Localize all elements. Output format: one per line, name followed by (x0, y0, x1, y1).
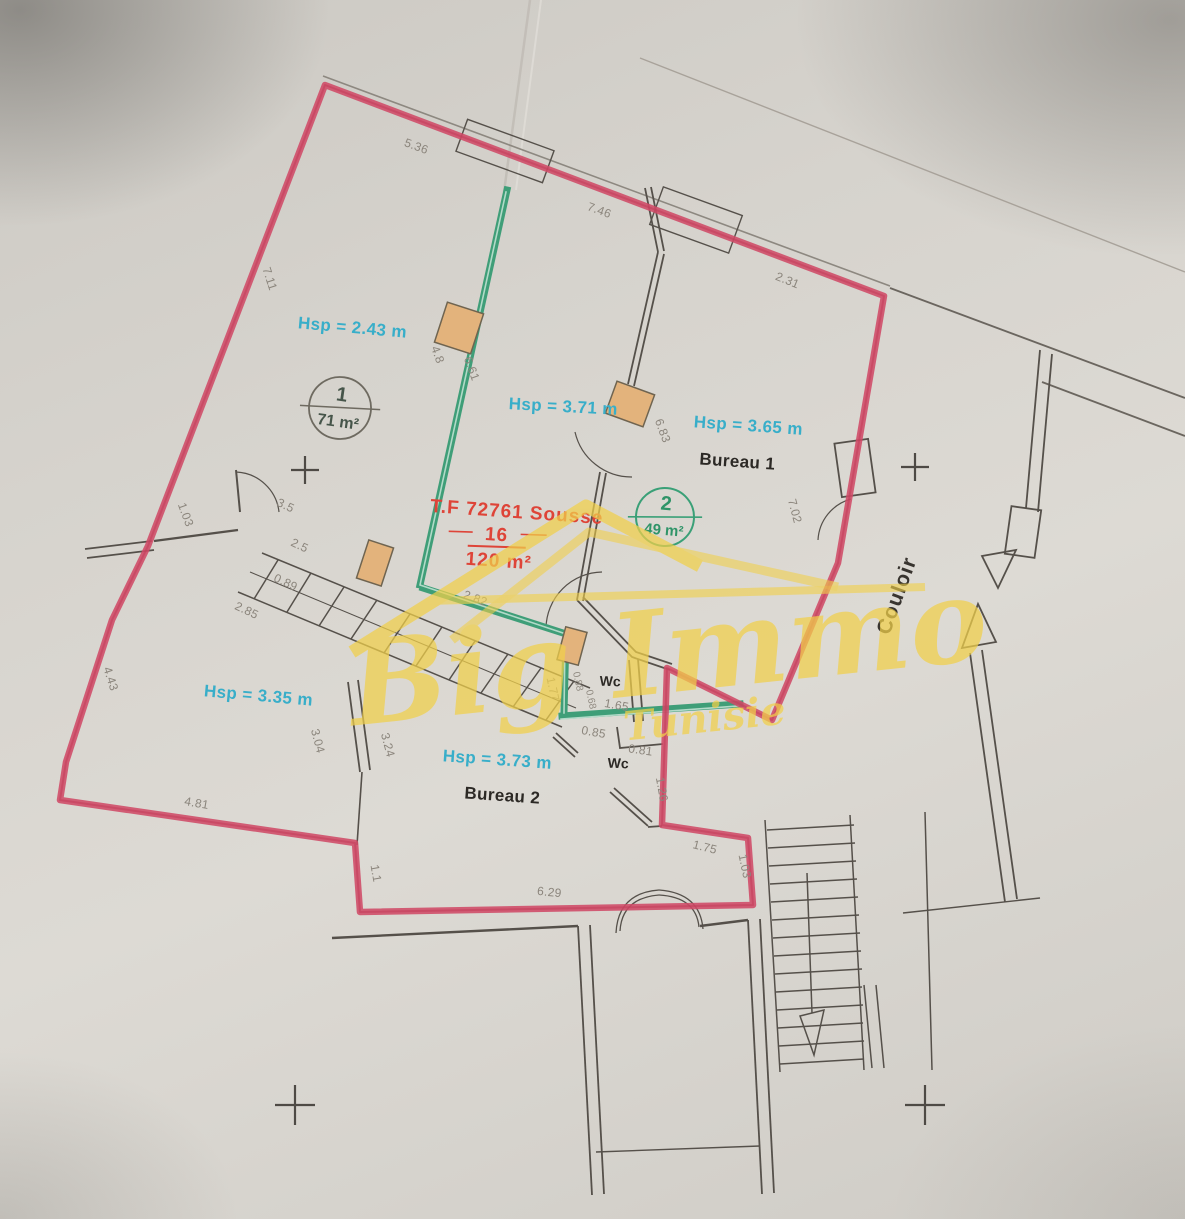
door-arc (236, 472, 279, 512)
survey-cross-icon (905, 1085, 945, 1125)
dimension-label: 7.11 (259, 265, 280, 292)
dimension-label: 2.85 (233, 599, 261, 622)
door-leaf (610, 792, 648, 826)
dimension-label: 6.83 (652, 417, 674, 445)
door-swing-icon (982, 550, 1016, 588)
room1-number: 1 (335, 383, 349, 406)
survey-cross-icon (901, 453, 929, 481)
lot-number: 16 (484, 524, 509, 547)
dimension-label: 7.02 (785, 497, 805, 524)
hsp-room1-label: Hsp = 2.43 m (297, 313, 407, 341)
dimension-label: 1.03 (175, 501, 197, 529)
dimension-label: 0.89 (272, 571, 300, 594)
hsp-bureau2-label: Hsp = 3.73 m (442, 746, 552, 773)
column (356, 540, 393, 586)
floorplan-svg: 1 71 m² 2 49 m² Hsp = 2.43 m Hsp = 3.71 … (0, 0, 1185, 1219)
room1-badge: 1 71 m² (296, 372, 384, 445)
dimension-label: 2.5 (289, 535, 311, 555)
dimension-label: 2.31 (773, 269, 801, 291)
bureau2-label: Bureau 2 (464, 783, 541, 807)
door-arc (620, 895, 659, 931)
room1-area: 71 m² (316, 411, 360, 434)
hsp-bureau1-label: Hsp = 3.65 m (693, 412, 803, 439)
paper-creases (504, 0, 1185, 272)
survey-cross-icon (291, 456, 319, 484)
bottom-walls (332, 890, 774, 1195)
dimension-label: 3.04 (308, 727, 328, 754)
watermark: Big Immo Tunisie (339, 506, 993, 754)
room2-number: 2 (660, 493, 673, 516)
door-leaf (614, 788, 652, 822)
wc-bottom-label: Wc (607, 755, 629, 772)
door-arc (575, 432, 632, 477)
dimension-label: 3.5 (275, 495, 297, 515)
dimension-label: 1.26 (653, 776, 671, 803)
dimension-label: 4.81 (183, 794, 210, 812)
dimension-label: 1.75 (691, 837, 718, 857)
hsp-left-label: Hsp = 3.35 m (203, 681, 313, 709)
staircase-bottom (765, 812, 932, 1072)
dimension-label: 4.43 (100, 665, 121, 693)
dimension-label: 5.36 (402, 135, 430, 157)
floorplan-photo: 1 71 m² 2 49 m² Hsp = 2.43 m Hsp = 3.71 … (0, 0, 1185, 1219)
dimension-label: 7.46 (585, 199, 613, 221)
stairs-arrowhead-icon (800, 1010, 824, 1055)
bureau1-label: Bureau 1 (699, 449, 776, 473)
dimension-label: 6.29 (536, 884, 562, 900)
dimension-label: 1.1 (368, 863, 385, 883)
door-leaf (236, 470, 240, 512)
door-arc (659, 895, 699, 927)
survey-cross-icon (275, 1085, 315, 1125)
dimension-label: 4.8 (428, 344, 447, 365)
stairs-direction-arrow (807, 873, 812, 1013)
hsp-room2-label: Hsp = 3.71 m (508, 394, 618, 419)
